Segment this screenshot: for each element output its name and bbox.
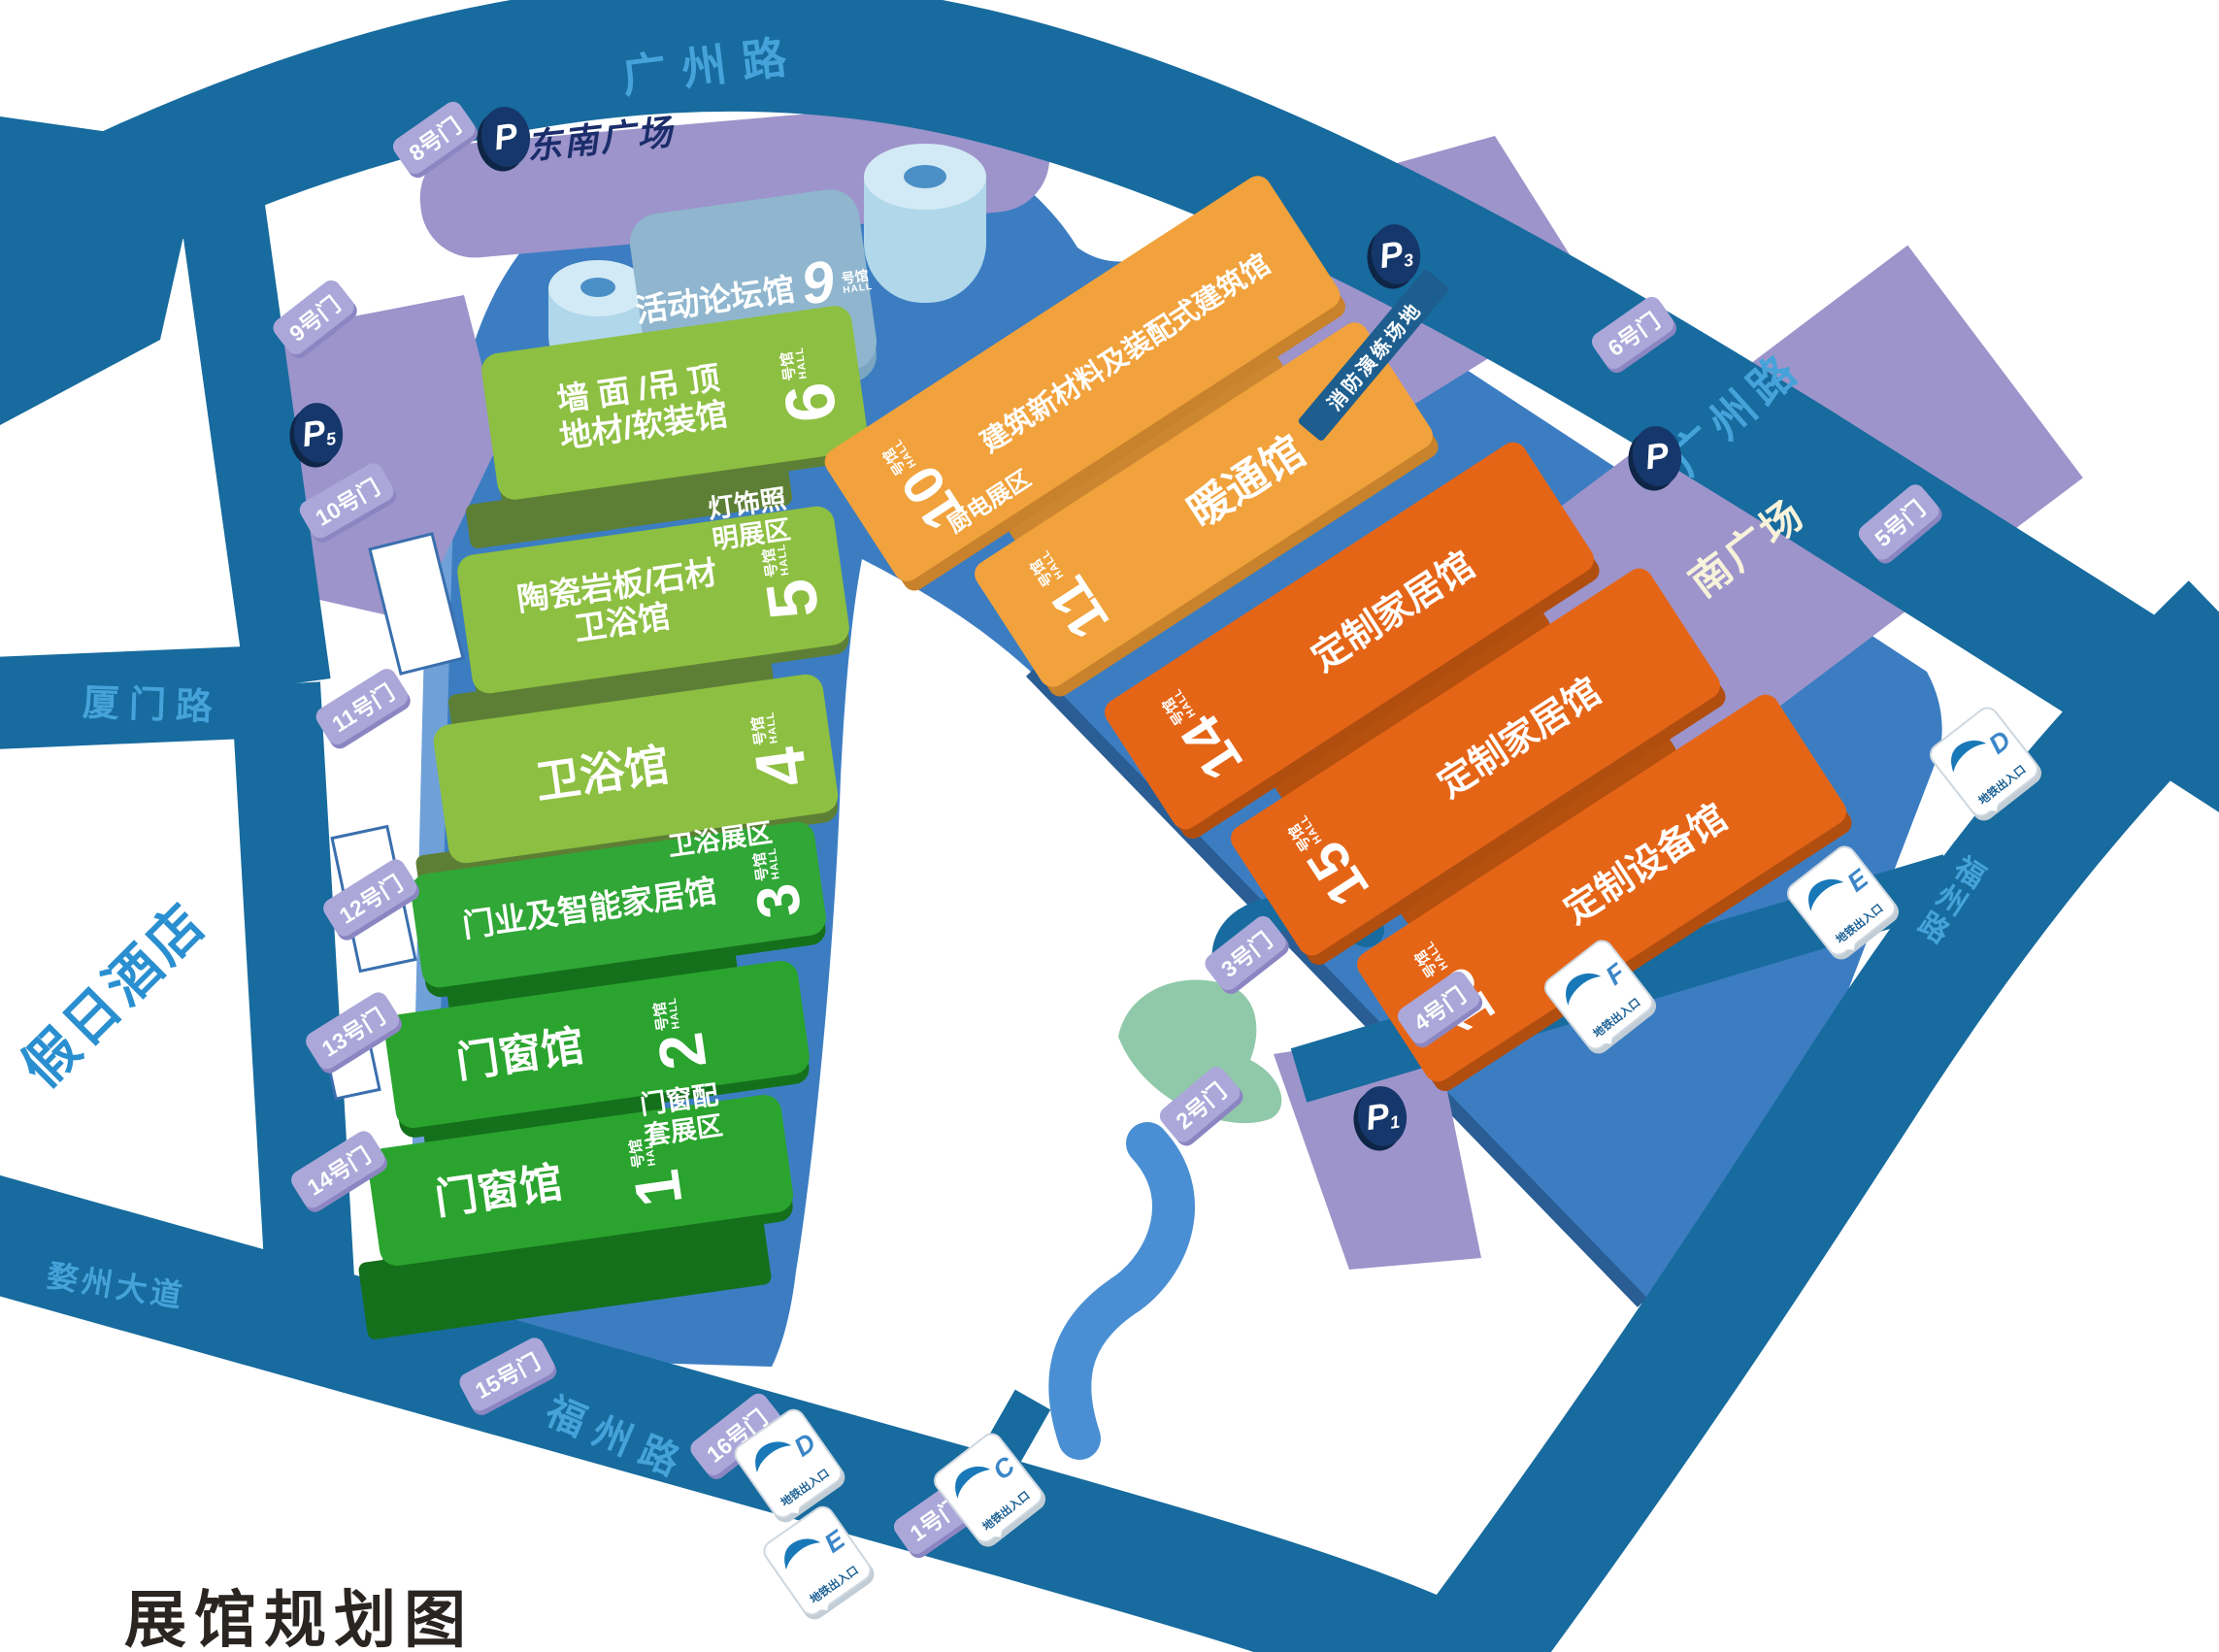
hall-5-number-block: 5 号馆HALL (757, 539, 824, 622)
hall-4-name-line1: 卫浴馆 (532, 739, 672, 808)
parking-letter: P (1363, 1095, 1392, 1139)
cylinder-building (864, 144, 986, 318)
hall-4-number: 4 (751, 743, 813, 790)
hall-3-number: 3 (753, 880, 807, 920)
parking-sub: 1 (1389, 1111, 1402, 1133)
hall-2-unit-en: HALL (667, 996, 682, 1030)
hall-1-name-line1: 门窗馆 (432, 1159, 566, 1225)
map-base-art (0, 0, 2219, 1652)
hall-3-unit-en: HALL (767, 846, 782, 880)
hall-5-number: 5 (762, 576, 824, 622)
parking-sub: 3 (1403, 249, 1415, 271)
hall-9-unit-en: HALL (843, 282, 874, 297)
hall-9-unit: 号馆 HALL (841, 268, 874, 296)
river-shape (1070, 1143, 1174, 1438)
hall-11-number-block: 11 号馆HALL (1023, 539, 1114, 644)
hall-4-number-block: 4 号馆HALL (745, 707, 812, 790)
hall-3-name-line1: 门业及智能家居馆 (460, 873, 719, 944)
hall-2-number: 2 (653, 1030, 711, 1073)
road-label-xiamen: 厦门路 (82, 673, 223, 731)
hall-15-number-block: 15 号馆HALL (1281, 804, 1374, 912)
page-title: 展馆规划图 (124, 1570, 474, 1652)
subway-letter: D (789, 1428, 822, 1464)
subway-letter: D (1983, 725, 2016, 760)
subway-letter: E (819, 1525, 851, 1560)
hall-6-number-block: 6 号馆HALL (775, 343, 842, 426)
parking-letter: P (1376, 233, 1406, 277)
subway-letter: C (987, 1451, 1020, 1486)
parking-letter: P (299, 412, 328, 455)
parking-letter: P (1642, 435, 1672, 479)
road-left-branch (218, 180, 288, 684)
hall-2-name-line1: 门窗馆 (453, 1022, 587, 1088)
hall-9-number: 9 (799, 258, 838, 309)
hall-6-number: 6 (780, 380, 843, 426)
parking-letter: P (491, 116, 520, 159)
parking-sub: 5 (325, 428, 338, 449)
hall-2-number-block: 2 号馆HALL (648, 993, 711, 1073)
hall-14-number-block: 14 号馆HALL (1155, 677, 1248, 786)
zone-window-parts: 门窗配 套展区 (638, 1080, 724, 1152)
hall-1-number: 1 (629, 1167, 686, 1209)
zone-lighting: 灯饰照 明展区 (706, 484, 792, 556)
venue-map: 活动论坛馆 9 号馆 HALL 墙 面 /吊 顶 地材/软装馆 6 号馆HALL… (0, 0, 2219, 1652)
hall-3-number-block: 3 号馆HALL (748, 843, 807, 920)
